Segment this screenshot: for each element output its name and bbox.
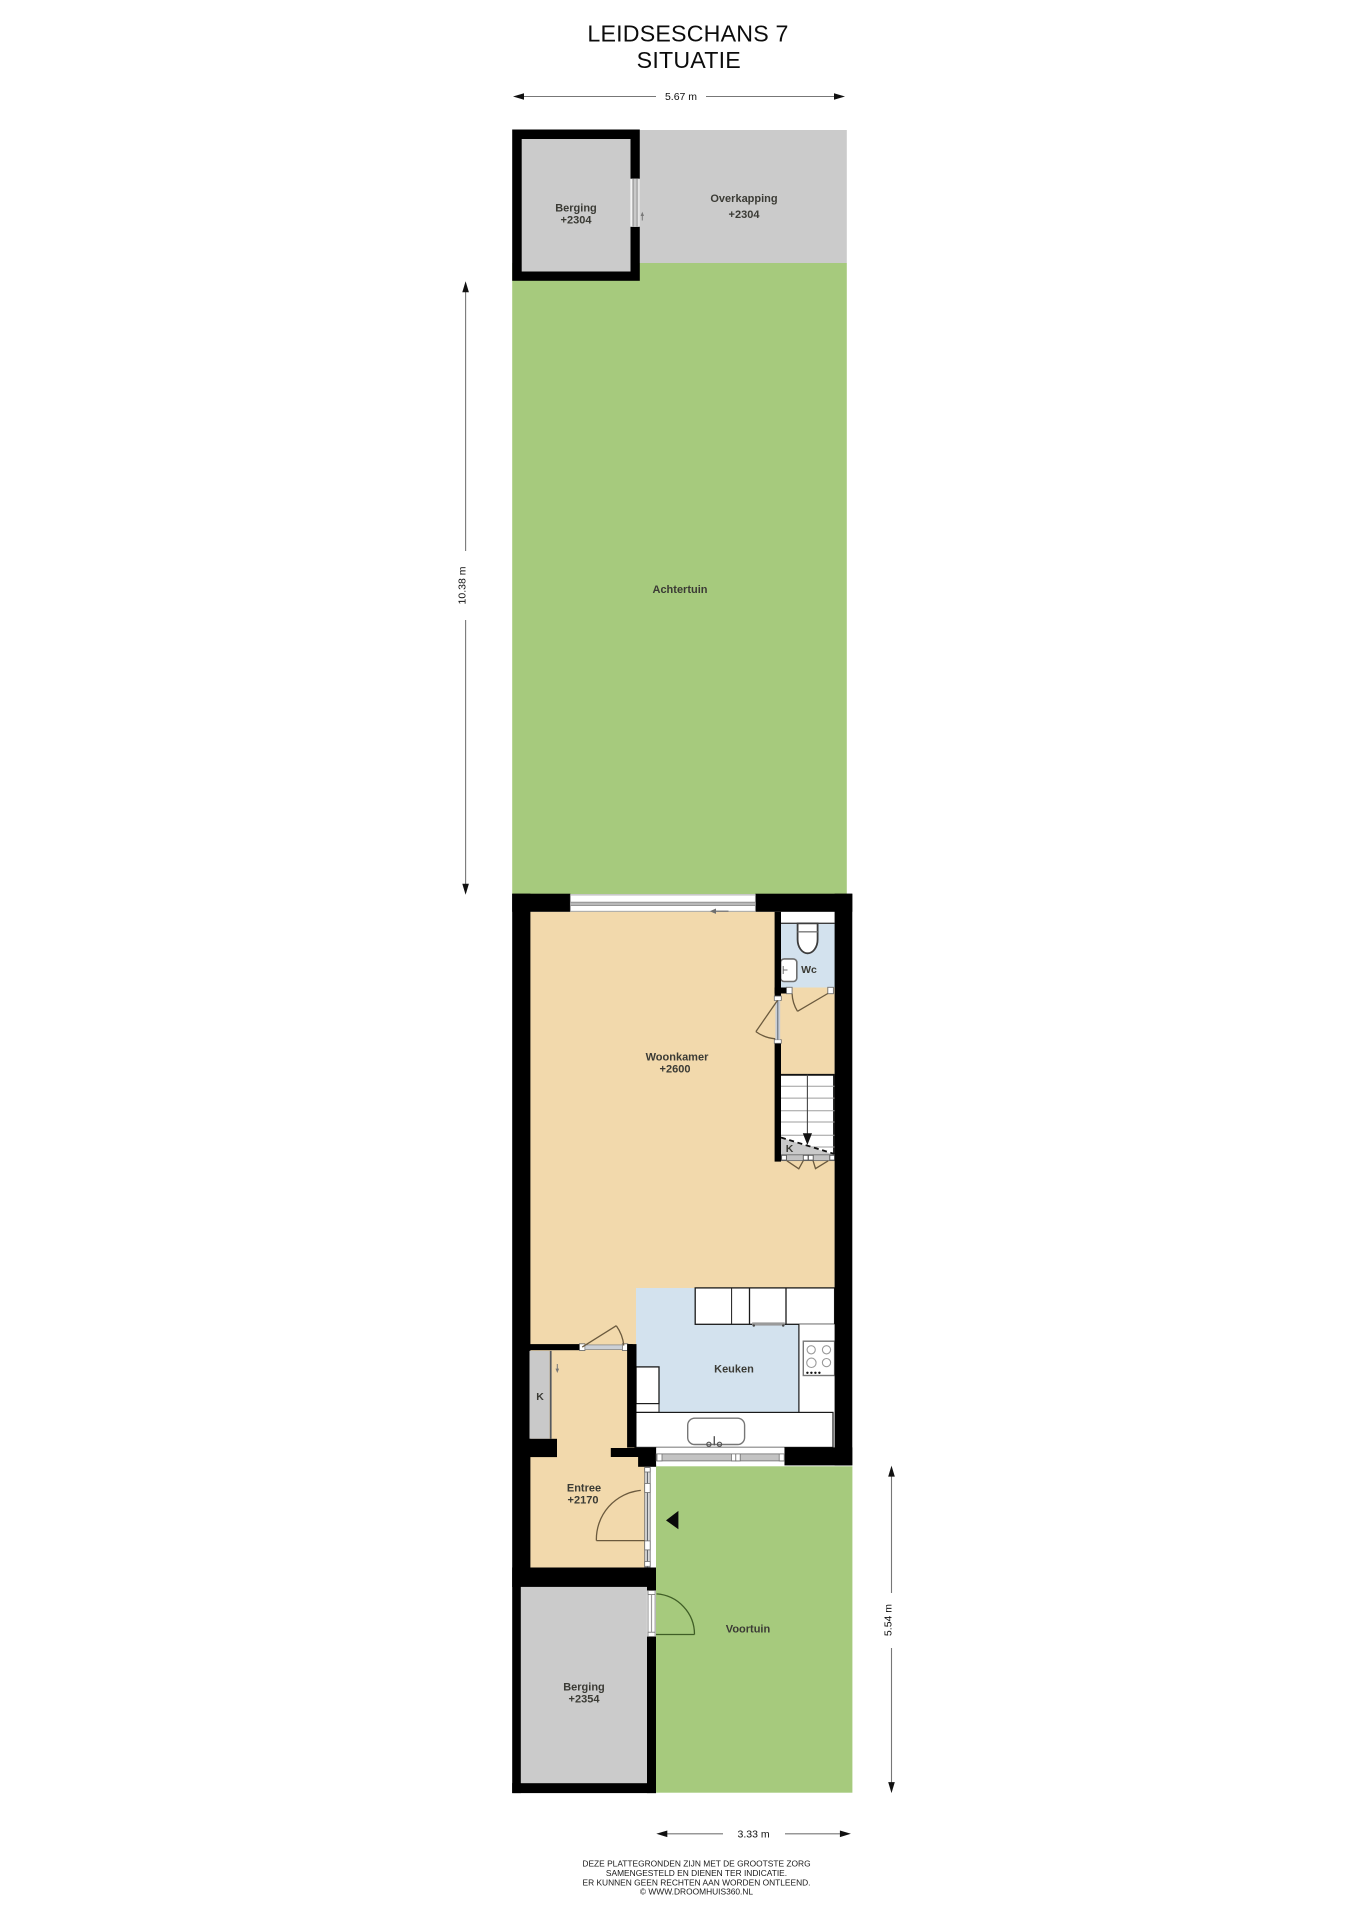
svg-text:Overkapping: Overkapping [710, 193, 777, 205]
svg-text:+2170: +2170 [568, 1495, 599, 1507]
svg-text:© WWW.DROOMHUIS360.NL: © WWW.DROOMHUIS360.NL [640, 1887, 754, 1897]
svg-text:K: K [536, 1391, 544, 1403]
svg-text:5.67 m: 5.67 m [665, 91, 697, 103]
svg-text:+2600: +2600 [660, 1064, 691, 1076]
svg-text:Entree: Entree [567, 1483, 601, 1495]
svg-text:5.54 m: 5.54 m [883, 1604, 895, 1636]
svg-text:10.38 m: 10.38 m [457, 566, 469, 604]
svg-text:Berging: Berging [555, 203, 597, 215]
svg-text:Achtertuin: Achtertuin [653, 584, 708, 596]
svg-text:Voortuin: Voortuin [726, 1624, 771, 1636]
svg-text:Keuken: Keuken [714, 1364, 754, 1376]
svg-text:Woonkamer: Woonkamer [646, 1052, 709, 1064]
svg-text:SITUATIE: SITUATIE [637, 47, 741, 73]
svg-text:+2304: +2304 [729, 209, 761, 221]
svg-text:Berging: Berging [563, 1682, 605, 1694]
svg-text:Wc: Wc [801, 964, 817, 976]
svg-text:K: K [786, 1143, 794, 1155]
svg-text:+2304: +2304 [561, 215, 593, 227]
svg-text:LEIDSESCHANS 7: LEIDSESCHANS 7 [587, 21, 788, 47]
svg-text:+2354: +2354 [569, 1694, 601, 1706]
svg-text:3.33 m: 3.33 m [738, 1829, 770, 1841]
